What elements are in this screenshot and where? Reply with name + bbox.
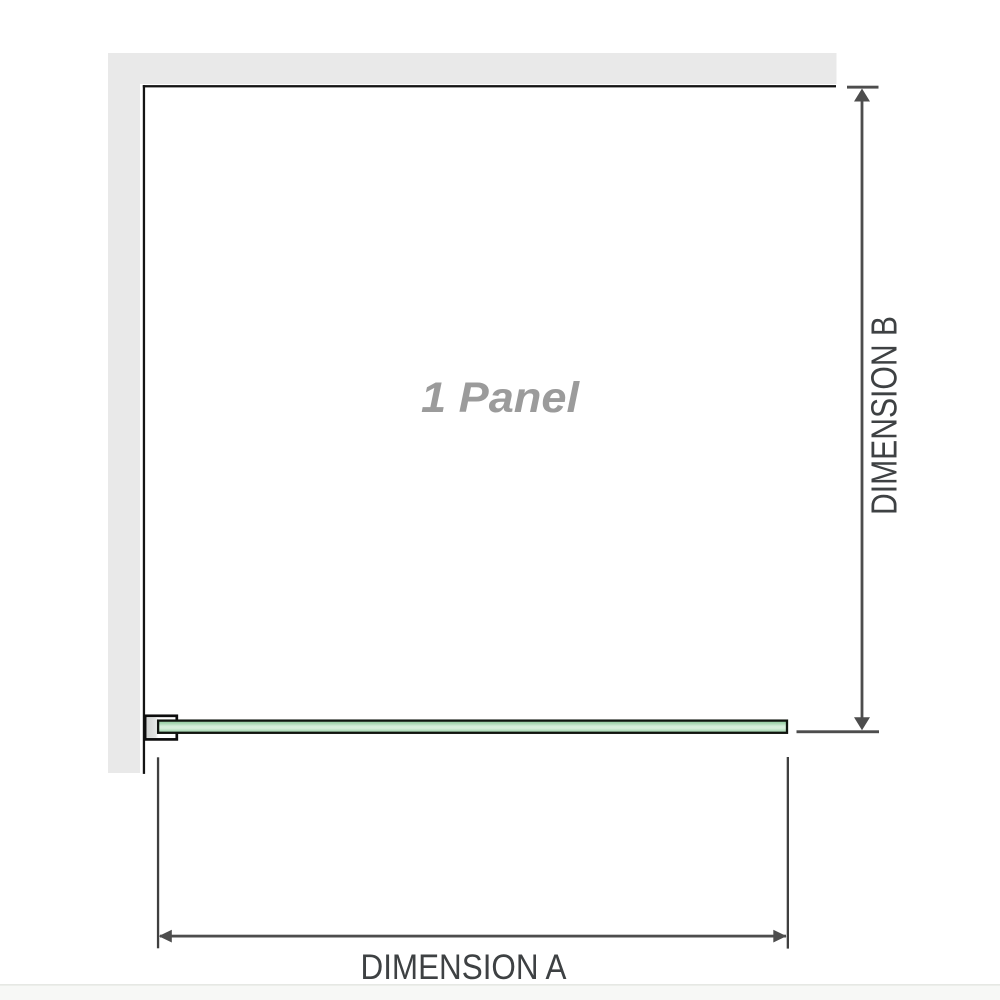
svg-text:DIMENSION B: DIMENSION B: [863, 316, 904, 515]
svg-text:DIMENSION A: DIMENSION A: [361, 948, 568, 987]
svg-text:1 Panel: 1 Panel: [421, 374, 580, 422]
